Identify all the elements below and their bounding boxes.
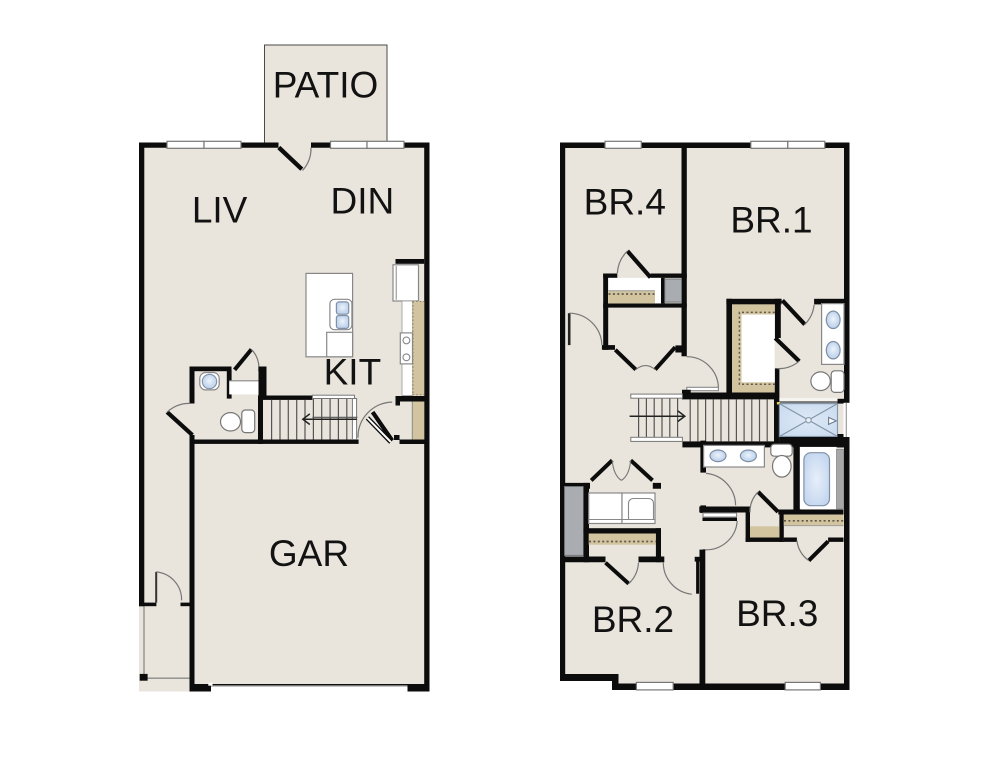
svg-text:DIN: DIN [331,180,395,221]
svg-text:BR.2: BR.2 [592,599,674,640]
svg-text:LIV: LIV [192,190,248,231]
svg-text:BR.1: BR.1 [730,199,812,240]
svg-text:GAR: GAR [269,533,349,574]
svg-text:BR.3: BR.3 [736,593,818,634]
svg-text:PATIO: PATIO [273,65,379,106]
svg-text:KIT: KIT [324,351,382,392]
svg-text:BR.4: BR.4 [584,181,666,222]
